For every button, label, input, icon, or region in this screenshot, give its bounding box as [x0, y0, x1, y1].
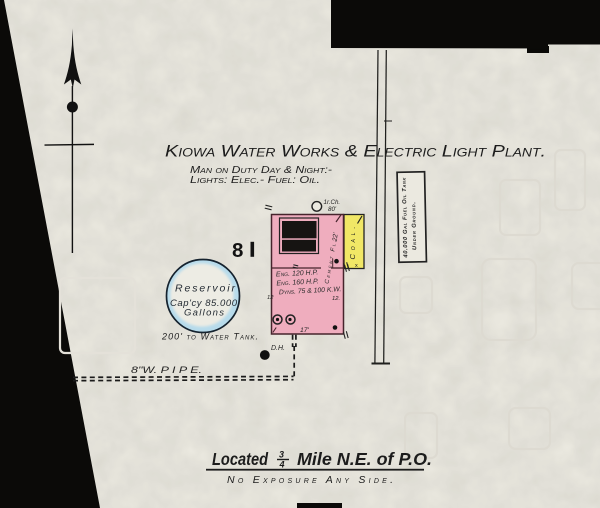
svg-text:Located: Located — [212, 449, 268, 469]
svg-text:Under Ground.: Under Ground. — [411, 202, 418, 250]
svg-text:Mile N.E. of P.O.: Mile N.E. of P.O. — [297, 449, 432, 469]
svg-text:3: 3 — [279, 450, 284, 460]
svg-text:12: 12 — [267, 295, 274, 301]
svg-text:4: 4 — [279, 460, 285, 470]
svg-text:D.H.: D.H. — [271, 345, 285, 352]
svg-text:17': 17' — [300, 327, 310, 334]
svg-text:x: x — [355, 263, 358, 269]
svg-text:12.: 12. — [332, 296, 340, 302]
svg-text:200' to Water Tank.: 200' to Water Tank. — [161, 332, 258, 342]
svg-text:1r.Ch.: 1r.Ch. — [324, 199, 341, 206]
svg-text:80': 80' — [328, 206, 337, 213]
svg-text:8: 8 — [232, 239, 243, 262]
svg-text:Lights: Elec.- Fuel: Oil.: Lights: Elec.- Fuel: Oil. — [190, 175, 320, 186]
svg-text:Kiowa Water Works & Electric L: Kiowa Water Works & Electric Light Plant… — [165, 142, 546, 161]
svg-text:8"W. P I P E.: 8"W. P I P E. — [131, 365, 202, 376]
svg-text:22': 22' — [332, 232, 340, 243]
